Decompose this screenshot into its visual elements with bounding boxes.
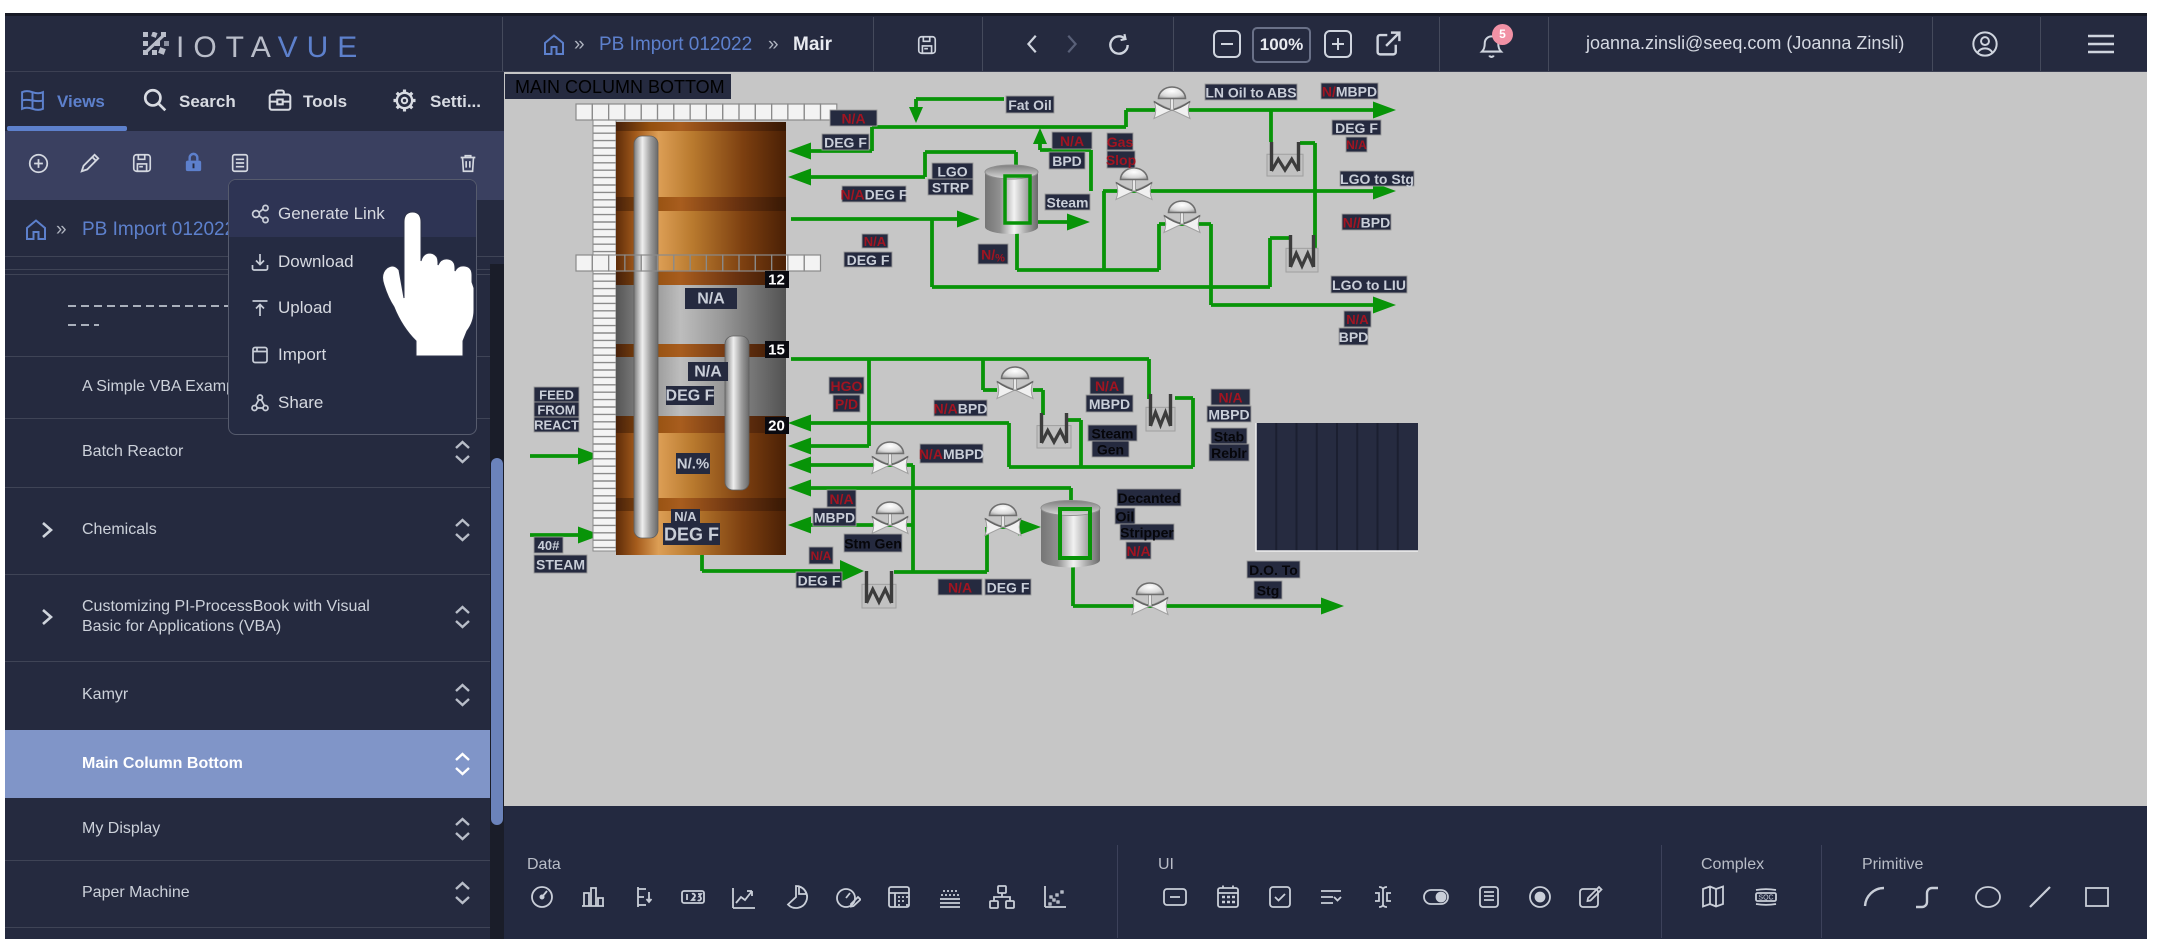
svg-text:N/A: N/A <box>1346 312 1369 327</box>
svg-text:DEG F: DEG F <box>824 135 867 151</box>
svg-text:DEG F: DEG F <box>1335 120 1378 136</box>
svg-text:N/A: N/A <box>829 491 853 507</box>
svg-text:Stab: Stab <box>1214 429 1244 445</box>
svg-text:SQC: SQC <box>1758 895 1773 902</box>
svg-text:REACT: REACT <box>534 418 579 433</box>
svg-text:Reblr: Reblr <box>1211 445 1247 461</box>
svg-text:N/A: N/A <box>697 291 725 308</box>
svg-text:N/A: N/A <box>948 580 972 596</box>
svg-text:FROM: FROM <box>537 403 575 418</box>
svg-text:D.O. To: D.O. To <box>1249 562 1298 578</box>
svg-text:20: 20 <box>768 418 785 435</box>
svg-text:DEG F: DEG F <box>664 525 719 545</box>
svg-text:N/A: N/A <box>1346 138 1367 152</box>
svg-text:N/A: N/A <box>841 111 865 127</box>
svg-text:HGO: HGO <box>831 378 863 394</box>
svg-text:N/.%: N/.% <box>677 456 710 473</box>
svg-text:15: 15 <box>768 342 785 359</box>
svg-text:Stg: Stg <box>1257 583 1280 599</box>
svg-text:Oil: Oil <box>1116 509 1135 525</box>
svg-text:N/A: N/A <box>1060 133 1084 149</box>
svg-text:DEG F: DEG F <box>987 580 1030 596</box>
svg-text:Steam: Steam <box>1046 195 1088 211</box>
svg-text:LGO to Stg: LGO to Stg <box>1340 171 1414 187</box>
svg-text:Decanted: Decanted <box>1117 490 1180 506</box>
svg-text:N/A: N/A <box>864 234 887 249</box>
svg-text:MBPD: MBPD <box>814 510 855 526</box>
svg-text:12: 12 <box>768 272 785 289</box>
svg-text:Steam: Steam <box>1091 426 1133 442</box>
svg-text:LN Oil to ABS: LN Oil to ABS <box>1205 85 1296 101</box>
svg-text:N/AMBPD: N/AMBPD <box>919 446 984 462</box>
svg-text:N/A: N/A <box>694 364 722 381</box>
svg-text:Fat Oil: Fat Oil <box>1008 97 1052 113</box>
svg-text:DEG F: DEG F <box>666 388 715 405</box>
svg-text:Slop: Slop <box>1106 152 1136 168</box>
svg-text:N/ADEG F: N/ADEG F <box>841 187 908 203</box>
svg-text:N/A: N/A <box>1095 378 1119 394</box>
svg-text:Gen: Gen <box>1097 442 1124 458</box>
svg-text:BPD: BPD <box>1339 329 1369 345</box>
svg-text:N//BPD: N//BPD <box>1343 215 1390 231</box>
svg-text:LGO: LGO <box>937 164 967 180</box>
svg-text:DEG F: DEG F <box>798 573 841 589</box>
svg-text:MAIN COLUMN BOTTOM: MAIN COLUMN BOTTOM <box>515 77 725 97</box>
svg-text:FEED: FEED <box>539 388 574 403</box>
svg-text:STRP: STRP <box>932 180 969 196</box>
svg-text:MBPD: MBPD <box>1208 407 1249 423</box>
svg-text:BPD: BPD <box>1052 153 1082 169</box>
svg-text:40#: 40# <box>538 538 560 553</box>
svg-text:N/A: N/A <box>1126 543 1150 559</box>
svg-text:N/MBPD: N/MBPD <box>1322 84 1377 100</box>
svg-text:STEAM: STEAM <box>536 557 585 573</box>
svg-text:DEG F: DEG F <box>847 252 890 268</box>
svg-text:N/A: N/A <box>674 509 697 524</box>
svg-text:N/A: N/A <box>811 549 832 563</box>
svg-text:LGO to LIU: LGO to LIU <box>1332 277 1406 293</box>
svg-text:N/A: N/A <box>1218 390 1242 406</box>
svg-text:P/D: P/D <box>835 396 858 412</box>
svg-text:MBPD: MBPD <box>1089 396 1130 412</box>
svg-text:Gas: Gas <box>1107 134 1134 150</box>
svg-text:N/ABPD: N/ABPD <box>934 401 988 417</box>
svg-text:Stm Gen: Stm Gen <box>844 536 902 552</box>
svg-text:Stripper: Stripper <box>1120 525 1174 541</box>
